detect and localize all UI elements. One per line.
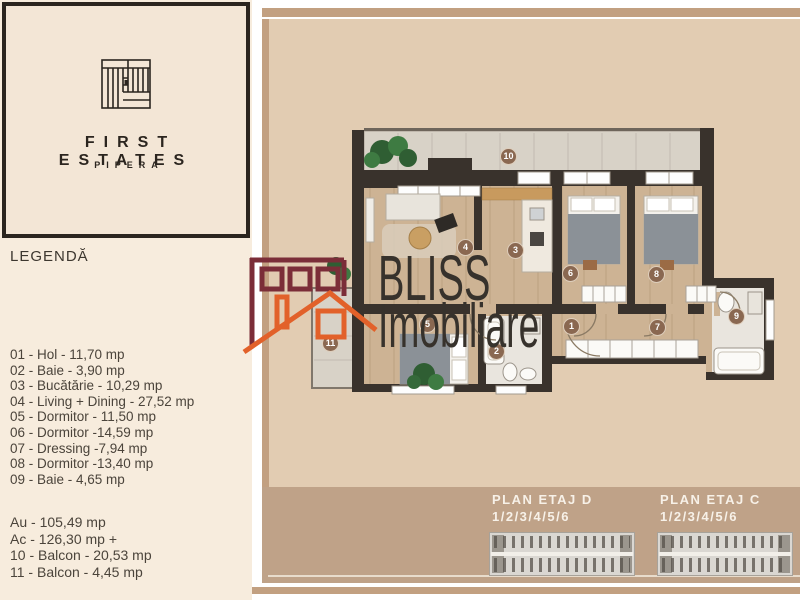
top-tan-bar (262, 8, 800, 17)
legend-item: 05 - Dormitor - 11,50 mp (10, 409, 250, 425)
mini-plan-units (494, 558, 629, 572)
legend-item: 08 - Dormitor -13,40 mp (10, 456, 250, 472)
room-badge-3: 3 (507, 242, 524, 259)
legend-item: 06 - Dormitor -14,59 mp (10, 425, 250, 441)
mini-plan-units (494, 536, 629, 548)
legend-item: 07 - Dressing -7,94 mp (10, 441, 250, 457)
legend-totals: Au - 105,49 mpAc - 126,30 mp +10 - Balco… (10, 514, 250, 580)
plan-etaj-c-title: PLAN ETAJ C (660, 492, 761, 507)
bottom-tan-bar (252, 587, 800, 594)
watermark-imobiliare: Imobiliare (378, 296, 539, 358)
legend-item: 02 - Baie - 3,90 mp (10, 363, 250, 379)
mini-plan-units (662, 558, 788, 572)
legend-item: 03 - Bucătărie - 10,29 mp (10, 378, 250, 394)
legend-item: 10 - Balcon - 20,53 mp (10, 547, 250, 564)
brand-location: PIPERA (6, 160, 246, 170)
brand-logo-box: FIRST ESTATES PIPERA (2, 2, 250, 238)
plan-etaj-d-title: PLAN ETAJ D (492, 492, 593, 507)
room-badge-8: 8 (648, 266, 665, 283)
legend-item: Au - 105,49 mp (10, 514, 250, 531)
legend-item: Ac - 126,30 mp + (10, 531, 250, 548)
plan-etaj-d-block: PLAN ETAJ D 1/2/3/4/5/6 (492, 492, 593, 524)
room-badge-6: 6 (562, 265, 579, 282)
legend-item: 11 - Balcon - 4,45 mp (10, 564, 250, 581)
mini-plan-units (662, 536, 788, 548)
bliss-imobiliare-logo-icon (238, 252, 388, 362)
legend-item: 09 - Baie - 4,65 mp (10, 472, 250, 488)
legend-item: 04 - Living + Dining - 27,52 mp (10, 394, 250, 410)
room-badge-7: 7 (649, 319, 666, 336)
legend-title: LEGENDĂ (10, 248, 89, 265)
first-estates-monogram-icon (100, 58, 152, 110)
mini-floorplan-d-thumbnail (489, 532, 635, 576)
plan-etaj-d-levels: 1/2/3/4/5/6 (492, 509, 593, 524)
mini-plan-corridor (491, 552, 632, 556)
mini-floorplan-c-thumbnail (657, 532, 793, 576)
plan-etaj-c-block: PLAN ETAJ C 1/2/3/4/5/6 (660, 492, 761, 524)
room-badge-10: 10 (500, 148, 517, 165)
room-badge-1: 1 (563, 318, 580, 335)
room-badge-9: 9 (728, 308, 745, 325)
legend-list: 01 - Hol - 11,70 mp02 - Baie - 3,90 mp03… (10, 347, 250, 487)
legend-item: 01 - Hol - 11,70 mp (10, 347, 250, 363)
flyer-root: FIRST ESTATES PIPERA LEGENDĂ 01 - Hol - … (0, 0, 800, 600)
mini-plan-corridor (659, 552, 790, 556)
plan-etaj-c-levels: 1/2/3/4/5/6 (660, 509, 761, 524)
